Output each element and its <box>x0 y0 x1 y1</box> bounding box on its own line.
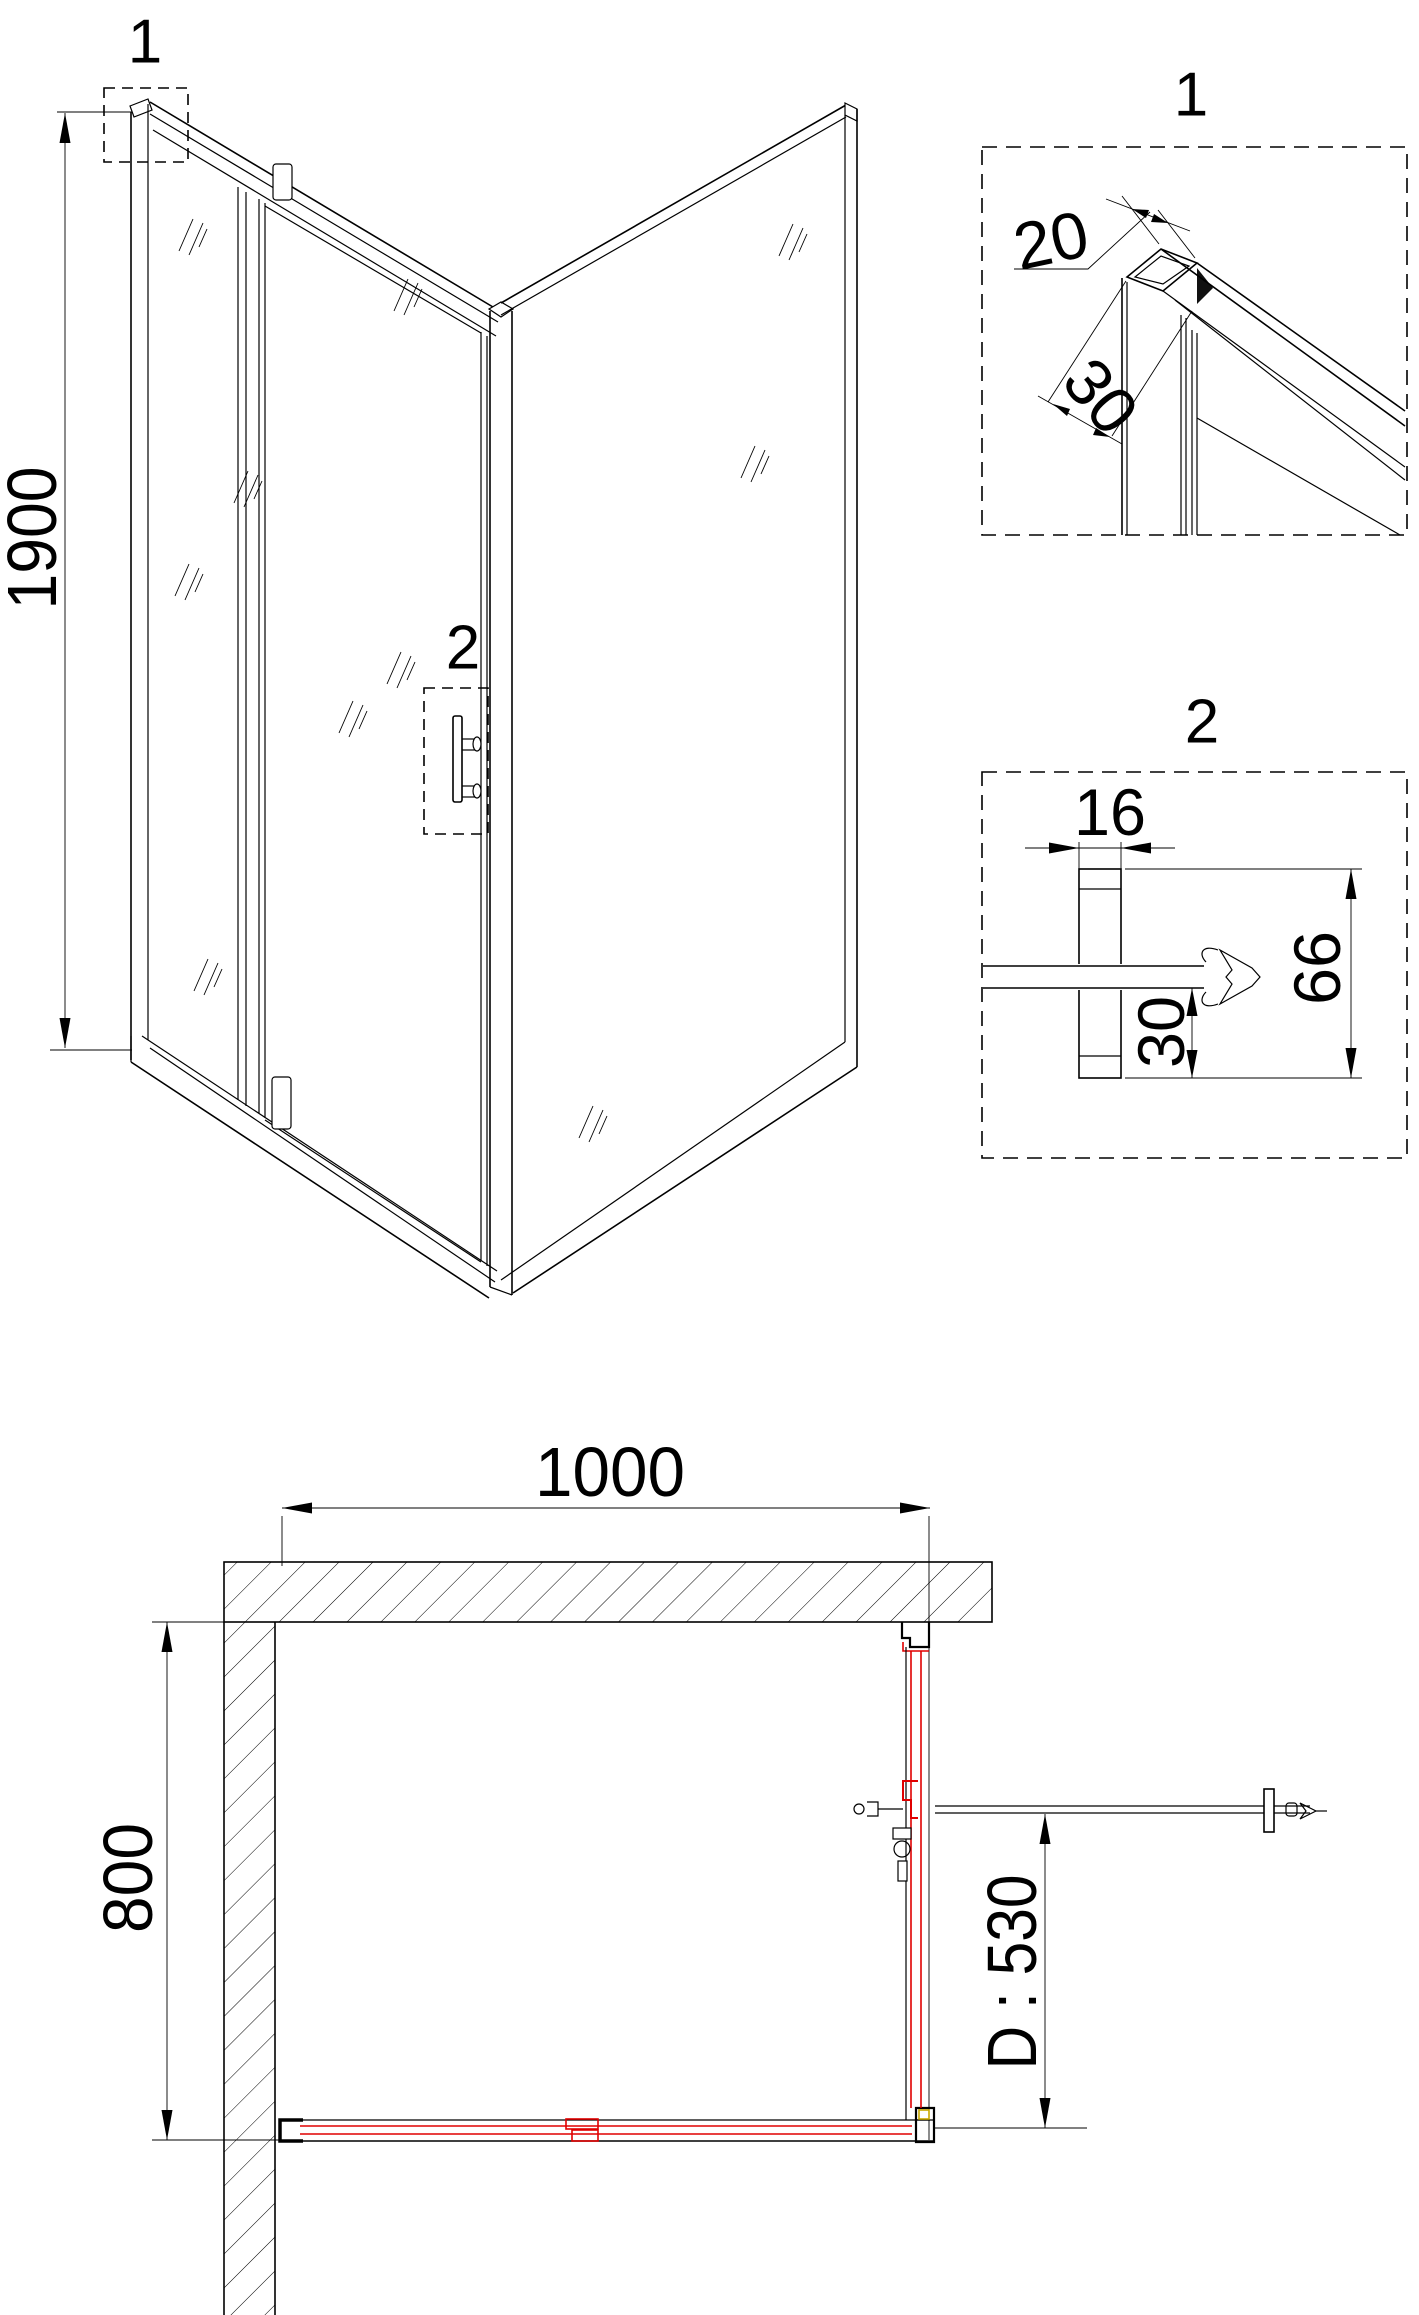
left-wall-profile <box>130 99 152 1060</box>
detail-2-title: 2 <box>1185 688 1219 757</box>
wall-side-seal <box>854 1802 903 1816</box>
corner-fitting-gold <box>919 2110 929 2119</box>
pivot-door <box>259 164 487 1266</box>
isometric-view: 1900 1 <box>0 8 857 1299</box>
left-wall <box>224 1622 275 2315</box>
shower-enclosure-drawing: 1900 1 <box>0 0 1419 2315</box>
detail-1-dim-30: 30 <box>1038 281 1192 448</box>
bottom-panel-wall-bracket <box>280 2120 303 2141</box>
plan-view: 1000 800 <box>89 1433 1327 2315</box>
dim-20-label: 20 <box>1007 196 1095 284</box>
glass-seal-profile <box>1202 948 1260 1006</box>
dim-door-530: D : 530 <box>933 1814 1087 2128</box>
door-handle <box>453 716 481 802</box>
handle-bar <box>453 716 462 802</box>
open-door <box>935 1789 1327 1832</box>
detail-2-profile <box>983 869 1260 1078</box>
top-wall <box>224 1562 992 1622</box>
dim-30b-label: 30 <box>1124 996 1198 1068</box>
dim-800-label: 800 <box>89 1823 167 1933</box>
dim-height-label: 1900 <box>0 467 71 610</box>
detail-view-1: 1 20 <box>982 61 1407 536</box>
dim-530-label: D : 530 <box>973 1875 1051 2070</box>
detail-2-dim-30: 30 <box>1124 988 1198 1078</box>
bottom-frame <box>131 1036 497 1298</box>
dim-30-label: 30 <box>1049 344 1153 448</box>
bottom-panel <box>280 2108 934 2142</box>
detail-2-dim-16: 16 <box>1025 775 1175 872</box>
bottom-pivot-hinge <box>272 1077 291 1129</box>
corner-post <box>489 302 513 1295</box>
fixed-panel-edge <box>238 187 246 1106</box>
dim-height-1900: 1900 <box>0 112 143 1050</box>
dim-1000-label: 1000 <box>535 1433 685 1511</box>
detail-view-2: 2 16 <box>982 688 1407 1159</box>
marker-1-box <box>104 88 188 162</box>
dim-66-label: 66 <box>1280 931 1354 1005</box>
marker-2-label: 2 <box>446 614 480 683</box>
detail-1-profile <box>1122 249 1405 535</box>
top-frame <box>150 102 498 336</box>
technical-drawing-page: 1900 1 <box>0 0 1419 2315</box>
door-side <box>854 1622 1327 2120</box>
side-panel <box>501 103 857 1293</box>
door-pivot-hardware <box>893 1828 911 1881</box>
dim-16-label: 16 <box>1074 775 1146 849</box>
detail-1-title: 1 <box>1174 61 1208 130</box>
marker-1-label: 1 <box>128 8 162 77</box>
open-door-handle <box>1264 1789 1274 1832</box>
top-pivot-hinge <box>273 164 292 200</box>
glass-reflections <box>175 219 807 1142</box>
dim-width-1000: 1000 <box>282 1433 930 2140</box>
detail-marker-1: 1 <box>104 8 188 163</box>
wall-mount-profile <box>902 1622 929 1647</box>
